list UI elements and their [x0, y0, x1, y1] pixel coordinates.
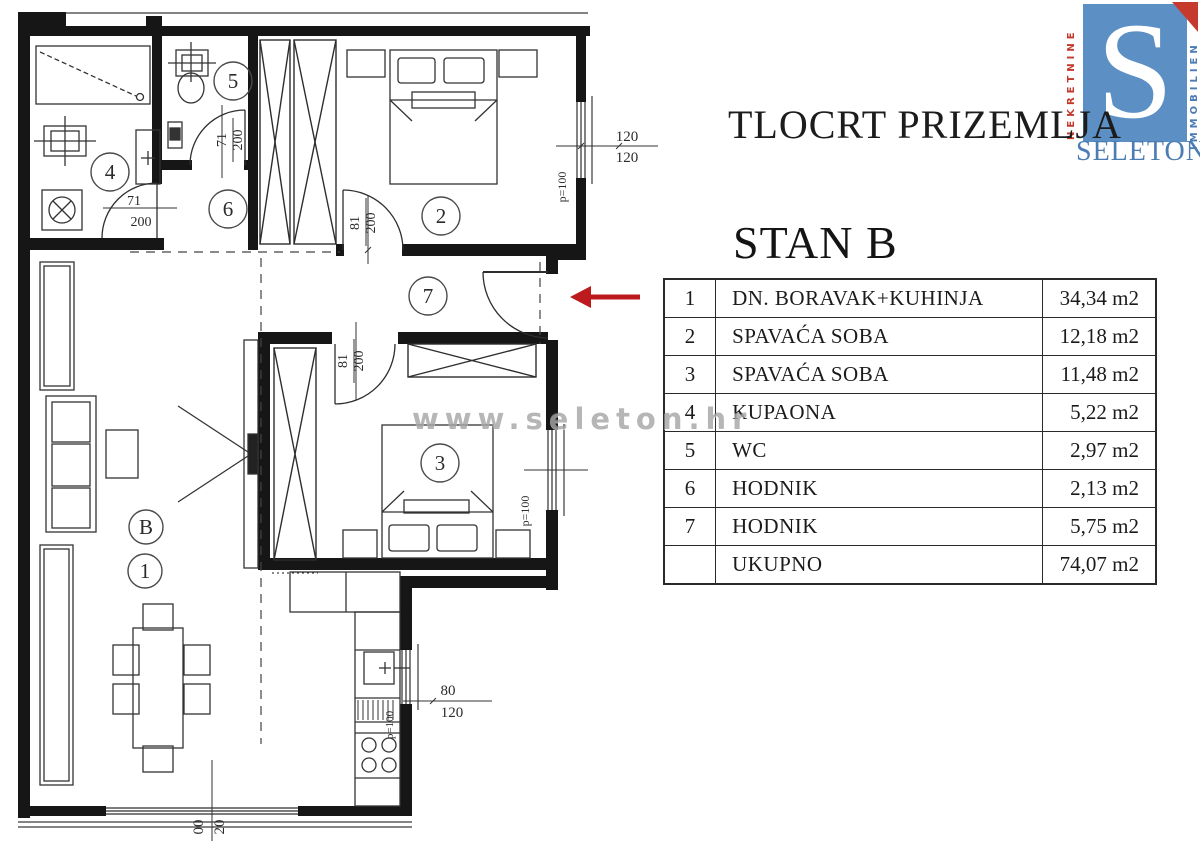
- room-area: 5,22 m2: [1042, 394, 1156, 432]
- stove-burner: [362, 738, 376, 752]
- room-number: 6: [664, 470, 716, 508]
- chair: [143, 746, 173, 772]
- total-label: UKUPNO: [716, 546, 1043, 585]
- dim-door3-height: 200: [352, 351, 367, 372]
- dim-window2-bottom: 120: [616, 150, 639, 166]
- room-number: 1: [664, 279, 716, 318]
- floorplan-page: { "header": { "title": "TLOCRT PRIZEMLJA…: [0, 0, 1200, 841]
- dim-door2-width: 81: [348, 216, 363, 230]
- chair: [143, 604, 173, 630]
- total-area: 74,07 m2: [1042, 546, 1156, 585]
- table-row-total: UKUPNO 74,07 m2: [664, 546, 1156, 585]
- room-name: SPAVAĆA SOBA: [716, 356, 1043, 394]
- room-area: 12,18 m2: [1042, 318, 1156, 356]
- room-name: KUPAONA: [716, 394, 1043, 432]
- room-number: 2: [664, 318, 716, 356]
- pillow: [398, 58, 435, 83]
- table-row: 5 WC 2,97 m2: [664, 432, 1156, 470]
- doors: [102, 110, 548, 404]
- table-row: 2 SPAVAĆA SOBA 12,18 m2: [664, 318, 1156, 356]
- stove-burner: [362, 758, 376, 772]
- svg-text:6: 6: [223, 197, 234, 221]
- dim-window2-parapet: p=100: [555, 172, 569, 203]
- wc-fixtures: [168, 42, 216, 148]
- room-marker-3: 3: [421, 444, 459, 482]
- room-name: HODNIK: [716, 470, 1043, 508]
- dimension-lines: [103, 105, 658, 841]
- chair: [184, 645, 210, 675]
- pillow: [444, 58, 484, 83]
- page-title: TLOCRT PRIZEMLJA: [728, 101, 1122, 148]
- dim-kitchen-window-height: 120: [441, 705, 464, 721]
- sofa: [46, 396, 96, 532]
- svg-text:2: 2: [436, 204, 447, 228]
- nightstand: [343, 530, 377, 558]
- bedroom2-furniture: [347, 50, 537, 184]
- room-area: 2,13 m2: [1042, 470, 1156, 508]
- dim-door5-width: 71: [215, 133, 230, 147]
- dim-door4-height: 200: [131, 215, 152, 230]
- dim-window3-parapet: p=100: [518, 496, 532, 527]
- coffee-table: [106, 430, 138, 478]
- table-row: 1 DN. BORAVAK+KUHINJA 34,34 m2: [664, 279, 1156, 318]
- stove-burner: [382, 758, 396, 772]
- room-name: DN. BORAVAK+KUHINJA: [716, 279, 1043, 318]
- table-row: 6 HODNIK 2,13 m2: [664, 470, 1156, 508]
- shower-tray: [36, 46, 150, 104]
- dim-bottom-window-a: 00: [191, 820, 207, 835]
- seleton-logo: NEKRETNINE S IMMOBILIEN SELETON: [1058, 0, 1200, 180]
- logo-right-vertical-text: IMMOBILIEN: [1189, 22, 1200, 150]
- svg-text:7: 7: [423, 284, 434, 308]
- kitchen: [290, 572, 410, 806]
- unit-title: STAN B: [733, 216, 898, 269]
- svg-text:1: 1: [140, 559, 151, 583]
- dim-door3-width: 81: [336, 354, 351, 368]
- room-marker-2: 2: [422, 197, 460, 235]
- shelf: [40, 262, 74, 390]
- chair: [184, 684, 210, 714]
- nightstand: [496, 530, 530, 558]
- room-marker-4: 4: [91, 153, 129, 191]
- room-number: 5: [664, 432, 716, 470]
- chair: [113, 684, 139, 714]
- nightstand: [347, 50, 385, 77]
- room-number: 3: [664, 356, 716, 394]
- dining-table: [133, 628, 183, 748]
- pillow: [389, 525, 429, 551]
- room-area: 34,34 m2: [1042, 279, 1156, 318]
- room-marker-7: 7: [409, 277, 447, 315]
- cabinet: [40, 545, 73, 785]
- room-number: [664, 546, 716, 585]
- nightstand: [499, 50, 537, 77]
- dim-door4-width: 71: [127, 194, 141, 209]
- stove-burner: [382, 738, 396, 752]
- room-marker-6: 6: [209, 190, 247, 228]
- dim-kitchen-window-width: 80: [441, 683, 456, 699]
- room-area: 2,97 m2: [1042, 432, 1156, 470]
- dim-bottom-window-b: 20: [212, 820, 228, 835]
- tv: [248, 434, 258, 474]
- svg-text:4: 4: [105, 160, 116, 184]
- pillow: [437, 525, 477, 551]
- counter: [290, 572, 400, 612]
- dim-door5-height: 200: [231, 130, 246, 151]
- room-name: HODNIK: [716, 508, 1043, 546]
- watermark: www.seleton.hr: [412, 402, 752, 436]
- room-marker-5: 5: [214, 62, 252, 100]
- room-name: WC: [716, 432, 1043, 470]
- table-row: 7 HODNIK 5,75 m2: [664, 508, 1156, 546]
- entrance-arrow-icon: [570, 286, 640, 308]
- dining-set: [113, 604, 210, 772]
- dim-door2-height: 200: [364, 213, 379, 234]
- room-number: 7: [664, 508, 716, 546]
- room-area: 11,48 m2: [1042, 356, 1156, 394]
- svg-text:B: B: [139, 515, 153, 539]
- svg-text:5: 5: [228, 69, 239, 93]
- windows: [106, 102, 585, 814]
- dim-window2-top: 120: [616, 129, 639, 145]
- unit-marker-B: B: [129, 510, 163, 544]
- dim-kitchen-window-parapet: p=100: [384, 710, 396, 739]
- svg-text:3: 3: [435, 451, 446, 475]
- chair: [113, 645, 139, 675]
- table-row: 3 SPAVAĆA SOBA 11,48 m2: [664, 356, 1156, 394]
- bathroom-fixtures: [34, 46, 160, 230]
- room-marker-1: 1: [128, 554, 162, 588]
- room-area: 5,75 m2: [1042, 508, 1156, 546]
- room-name: SPAVAĆA SOBA: [716, 318, 1043, 356]
- wardrobes: [260, 40, 536, 560]
